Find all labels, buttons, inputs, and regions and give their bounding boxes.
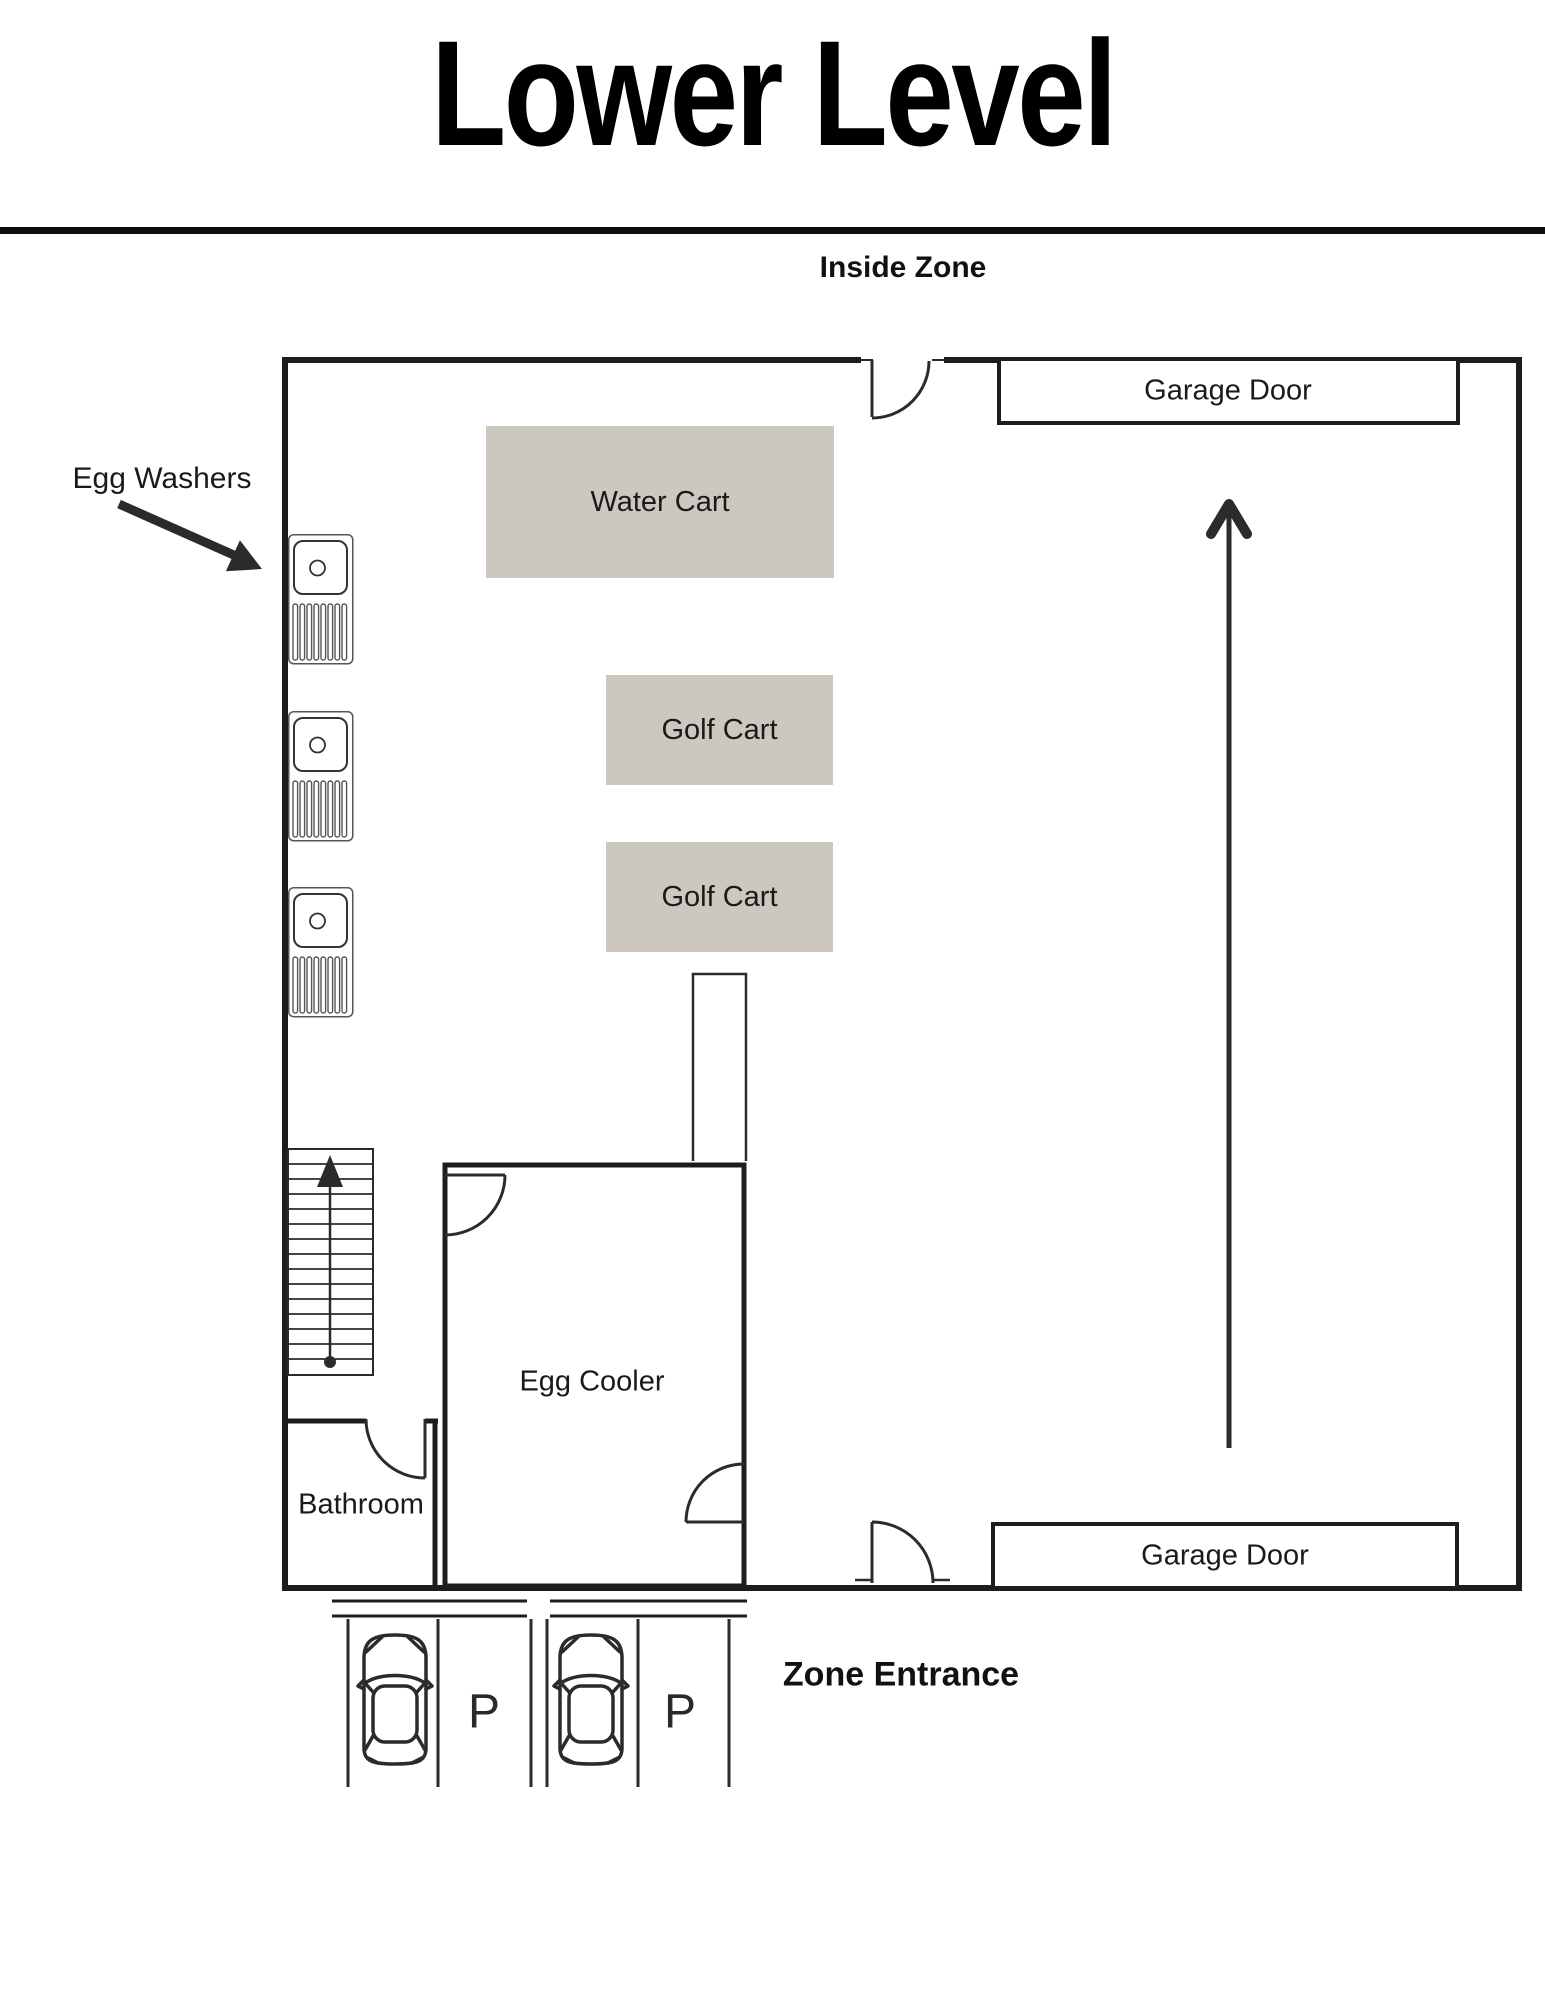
bathroom-door-swing (366, 1419, 425, 1478)
bathroom-label: Bathroom (298, 1489, 424, 1522)
egg-washers-label: Egg Washers (73, 462, 252, 496)
stairs-up-arrow-icon (317, 1155, 343, 1187)
egg-washer-sink-1 (289, 535, 353, 664)
inside-zone-outer-wall (285, 360, 1519, 1588)
bottom-wall-door (855, 1522, 950, 1583)
parking-space-1-mark: P (468, 1685, 500, 1740)
zone-entrance-label: Zone Entrance (783, 1656, 1019, 1695)
garage-door-top-label: Garage Door (1144, 375, 1312, 408)
pointer-arrow-icon (119, 504, 262, 571)
wall-stub (693, 974, 746, 1161)
parked-car-2 (554, 1635, 628, 1764)
egg-cooler-top-door-swing (445, 1175, 505, 1235)
parking-space-2-mark: P (664, 1685, 696, 1740)
egg-washer-sink-2 (289, 712, 353, 841)
inside-zone-label: Inside Zone (820, 251, 987, 285)
parked-car-1 (358, 1635, 432, 1764)
top-wall-door (861, 353, 945, 418)
egg-cooler-label: Egg Cooler (519, 1366, 664, 1399)
garage-door-bottom-label: Garage Door (1141, 1540, 1309, 1573)
lower-level-floorplan-page: Lower Level Inside Zone Water Cart Golf … (0, 0, 1545, 2000)
egg-cooler-right-door-swing (686, 1464, 744, 1522)
stairs-icon (288, 1149, 373, 1375)
floorplan-linework (0, 0, 1545, 2000)
up-arrow-icon (1211, 504, 1247, 1448)
egg-washer-sink-3 (289, 888, 353, 1017)
